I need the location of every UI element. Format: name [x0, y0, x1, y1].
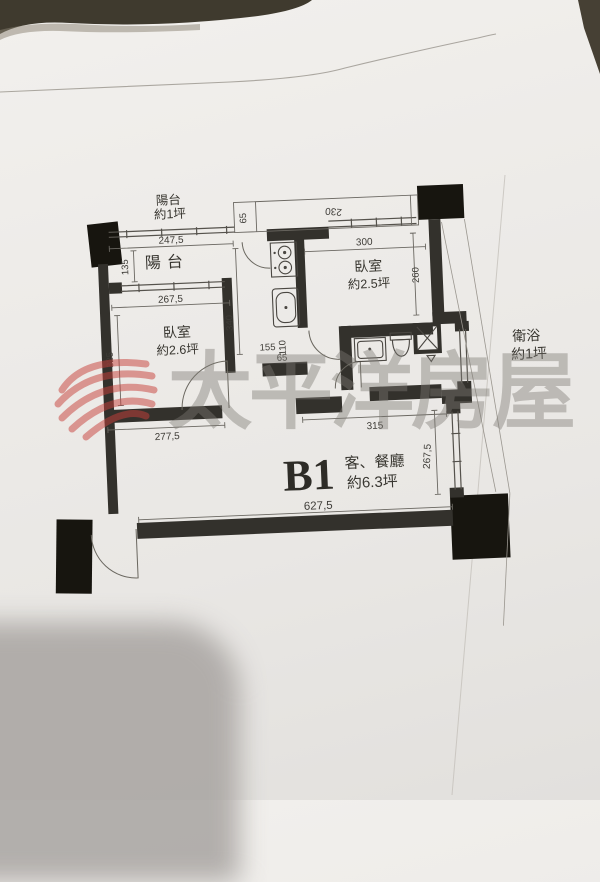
- bedroom2-name: 臥室: [354, 257, 383, 274]
- window-cap-1: [109, 282, 122, 294]
- wall-bottom: [137, 510, 453, 539]
- unit-label: B1: [282, 450, 335, 501]
- entrance-door: [91, 529, 138, 580]
- dim-ledge-width: 230: [324, 205, 342, 217]
- living-name: 客、餐廳: [344, 452, 405, 472]
- window-cap-5: [450, 487, 464, 498]
- table-edge-top: [0, 0, 600, 110]
- photo-shadow-bottom-left: [0, 622, 240, 882]
- column-bottom-right: [450, 493, 511, 559]
- dim-bedroom2-width: 300: [356, 237, 374, 249]
- balcony-label: 陽台: [145, 253, 190, 273]
- bedroom1-name: 臥室: [163, 324, 192, 341]
- dim-bedroom1-window: 267,5: [158, 294, 184, 306]
- table-surface-highlight: [0, 24, 200, 40]
- table-surface-top-right: [578, 0, 600, 74]
- bedroom2-area: 約2.5坪: [348, 275, 391, 292]
- balcony-note-area: 約1坪: [154, 206, 187, 222]
- dim-bedroom2-depth: 260: [410, 267, 422, 283]
- dim-balcony-width: 247,5: [158, 235, 184, 247]
- table-surface-top-left: [0, 0, 312, 34]
- column-top-left: [87, 221, 123, 267]
- wall-right-upper: [428, 219, 444, 316]
- dim-living-width: 627,5: [304, 500, 333, 513]
- kitchen-sink: [272, 288, 300, 327]
- balcony-note-name: 陽台: [156, 192, 182, 208]
- stove: [270, 242, 297, 277]
- paper-curl-line: [0, 34, 496, 92]
- dim-balcony-depth: 135: [120, 259, 132, 275]
- living-area: 約6.3坪: [347, 473, 399, 492]
- balcony-kitchen-door: [242, 241, 270, 269]
- pacific-swirl-ball-logo: [50, 348, 168, 444]
- column-top-right: [417, 184, 464, 220]
- bathroom-name: 衛浴: [512, 327, 541, 344]
- column-bottom-left: [56, 519, 93, 593]
- watermark-text: 太平洋房屋: [168, 344, 600, 454]
- dim-kitchen-depth: 340: [224, 315, 236, 331]
- dim-ledge-depth: 65: [238, 213, 249, 224]
